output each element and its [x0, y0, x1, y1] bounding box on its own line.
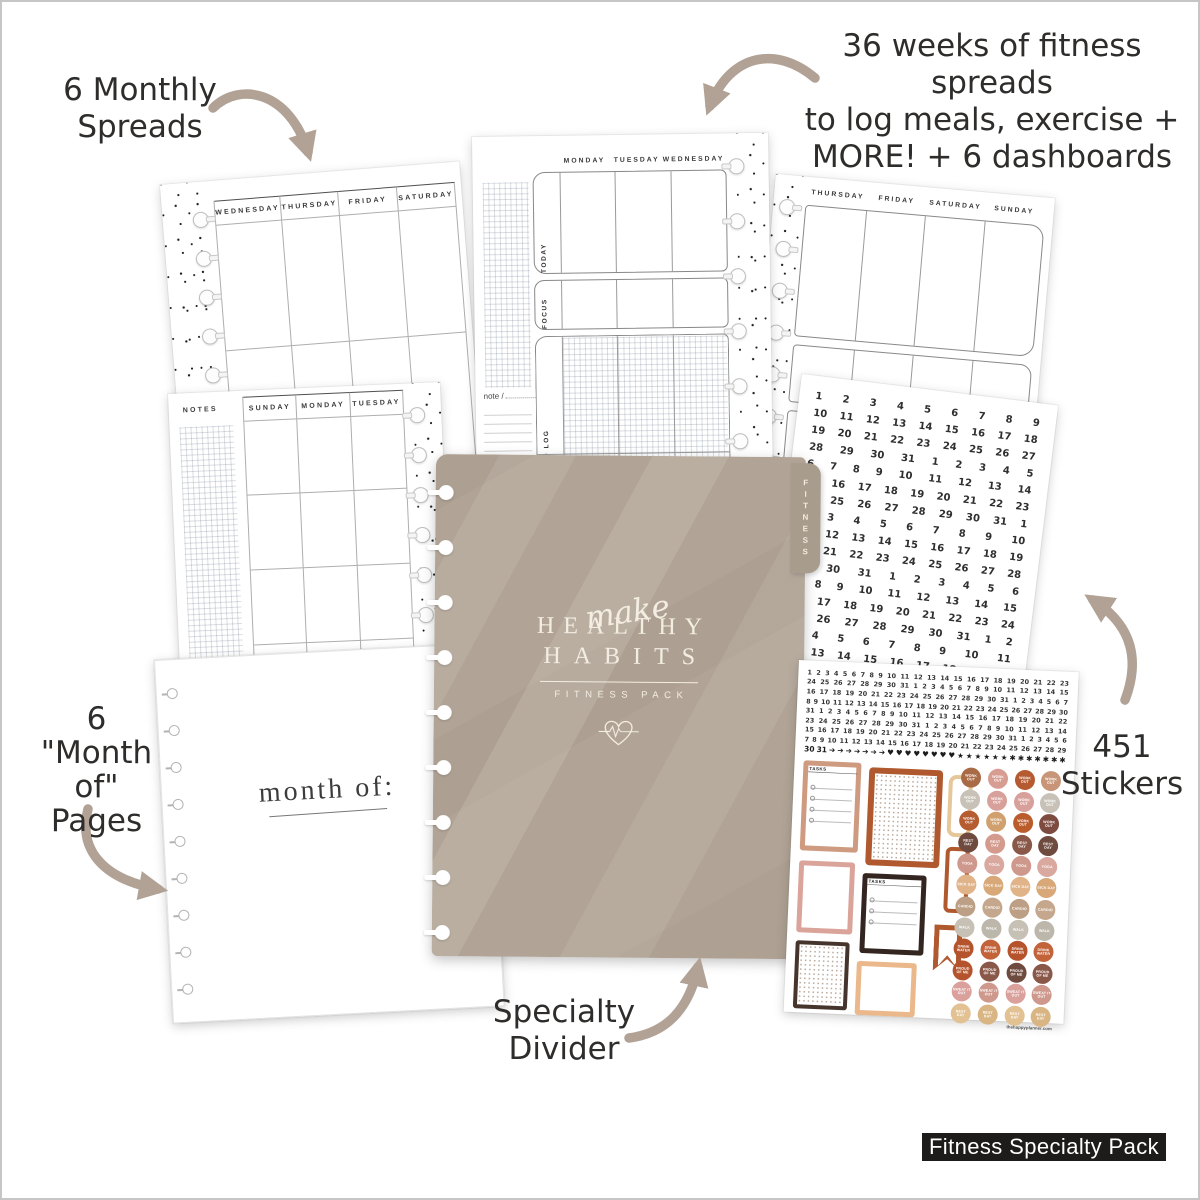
- disc-punch: [425, 815, 451, 830]
- circle-sticker: CARDIO: [1008, 898, 1029, 919]
- date-sticker: 28: [808, 441, 823, 454]
- circle-sticker-label: REST DAY: [1039, 842, 1058, 850]
- date-sticker: 20: [895, 606, 910, 619]
- date-sticker: 13: [864, 738, 873, 746]
- date-sticker: 23: [897, 691, 906, 699]
- date-sticker: 3: [1037, 736, 1042, 744]
- today-row-block: [794, 205, 1045, 357]
- date-sticker: 21: [952, 703, 961, 711]
- circle-sticker: REST DAY: [1031, 1006, 1052, 1027]
- date-sticker: 3: [869, 398, 877, 410]
- date-sticker: 14: [869, 700, 878, 708]
- symbol-sticker: ★: [983, 752, 990, 761]
- date-sticker: 16: [892, 701, 901, 709]
- date-sticker: 12: [1031, 726, 1040, 734]
- symbol-sticker: ♥: [931, 750, 938, 759]
- circle-sticker-label: WORK OUT: [1014, 798, 1033, 806]
- date-sticker: 9: [996, 724, 1001, 732]
- date-sticker: 10: [899, 711, 908, 719]
- date-sticker: 29: [938, 509, 953, 522]
- date-sticker: 16: [978, 714, 987, 722]
- date-sticker: 17: [992, 715, 1001, 723]
- date-sticker: 8: [869, 671, 874, 679]
- date-sticker: 9: [875, 467, 883, 479]
- date-sticker: 19: [869, 603, 884, 616]
- circle-sticker-label: SWEAT IT OUT: [1033, 991, 1052, 999]
- weekly-spread-left-page: note / MONDAY TUESDAY WEDNESDAY TODAY FO…: [472, 133, 773, 477]
- circle-sticker: SWEAT IT OUT: [1031, 985, 1052, 1006]
- circle-sticker-label: REST DAY: [959, 838, 978, 846]
- date-sticker: 15: [805, 726, 814, 734]
- date-sticker: 2: [955, 459, 963, 471]
- date-sticker: 4: [951, 722, 956, 730]
- symbol-sticker: ➔: [879, 748, 886, 757]
- date-sticker: 17: [904, 701, 913, 709]
- date-sticker: 6: [951, 408, 959, 420]
- circle-sticker: CARDIO: [955, 896, 976, 917]
- date-sticker: 8: [1005, 414, 1013, 426]
- date-sticker: 2: [842, 394, 850, 406]
- circle-sticker: SICK DAY: [983, 876, 1004, 897]
- date-sticker: 22: [988, 498, 1003, 511]
- date-sticker: 31: [912, 721, 921, 729]
- ruled-line: [484, 450, 532, 452]
- annotation-month-of-pages: 6 "Month of" Pages: [14, 702, 179, 838]
- date-sticker: 27: [847, 680, 856, 688]
- circle-sticker: PROUD OF ME: [979, 961, 1000, 982]
- circle-sticker: YOGA: [1037, 857, 1058, 878]
- date-sticker: 11: [1006, 686, 1015, 694]
- calendar-cell: [248, 493, 305, 570]
- circle-sticker: SICK DAY: [1009, 877, 1030, 898]
- circle-sticker-label: WALK: [982, 927, 1001, 931]
- date-sticker: 6: [863, 709, 868, 717]
- circle-sticker-label: WORK OUT: [961, 795, 980, 803]
- date-sticker: 18: [843, 727, 852, 735]
- date-sticker: 30: [887, 681, 896, 689]
- date-sticker: 9: [984, 686, 989, 694]
- date-sticker: 15: [953, 675, 962, 683]
- symbol-sticker: ★: [966, 751, 973, 760]
- disc-punch: [426, 705, 452, 720]
- date-sticker: 16: [806, 687, 815, 695]
- date-sticker: 3: [837, 708, 842, 716]
- calendar-cell: [354, 489, 411, 566]
- date-sticker: 7: [1063, 699, 1068, 707]
- date-sticker: 26: [845, 718, 854, 726]
- symbol-sticker: ➔: [870, 747, 877, 756]
- circle-sticker-label: REST DAY: [951, 1009, 970, 1017]
- date-sticker: 8: [975, 685, 980, 693]
- date-sticker: 20: [936, 491, 951, 504]
- disc-punch: [426, 650, 452, 665]
- date-sticker: 6: [1011, 586, 1019, 598]
- date-sticker: 3: [827, 512, 835, 524]
- circle-sticker-label: SWEAT IT OUT: [952, 988, 971, 996]
- date-sticker: 3: [978, 462, 986, 474]
- symbol-sticker: ♥: [896, 748, 903, 757]
- date-sticker: 5: [854, 709, 859, 717]
- date-sticker: 17: [830, 727, 839, 735]
- date-sticker: 15: [1002, 602, 1017, 615]
- date-sticker: 27: [884, 502, 899, 515]
- date-sticker: 10: [964, 649, 979, 662]
- date-sticker: 16: [970, 427, 985, 440]
- circle-sticker: YOGA: [957, 853, 978, 874]
- circle-sticker-label: CARDIO: [1036, 907, 1055, 911]
- circle-sticker: REST DAY: [977, 1004, 998, 1025]
- circle-sticker-label: SICK DAY: [1011, 885, 1030, 889]
- date-sticker: 10: [813, 408, 828, 421]
- date-sticker: 16: [967, 675, 976, 683]
- circle-sticker-label: DRINK WATER: [1034, 948, 1053, 956]
- circle-sticker: REST DAY: [985, 833, 1006, 854]
- date-sticker: 26: [1021, 745, 1030, 753]
- date-sticker: 30: [987, 695, 996, 703]
- date-sticker: 19: [811, 425, 826, 438]
- symbol-sticker: ✱: [1009, 753, 1016, 762]
- date-sticker: 15: [1059, 689, 1068, 697]
- circle-sticker: WORK OUT: [1039, 814, 1060, 835]
- date-sticker: 13: [1033, 688, 1042, 696]
- circle-sticker-label: DRINK WATER: [954, 945, 973, 953]
- date-sticker: 21: [921, 609, 936, 622]
- circle-sticker: REST DAY: [950, 1003, 971, 1024]
- date-sticker: 27: [1021, 450, 1036, 463]
- date-sticker: 16: [930, 542, 945, 555]
- date-sticker: 6: [958, 684, 963, 692]
- disc-punch: [427, 595, 453, 610]
- calendar-cell: [282, 215, 350, 347]
- circle-sticker: WORK OUT: [959, 810, 980, 831]
- date-sticker: 3: [931, 683, 936, 691]
- circle-sticker-label: YOGA: [1011, 864, 1030, 868]
- date-sticker: 12: [925, 712, 934, 720]
- circle-sticker-label: REST DAY: [1012, 840, 1031, 848]
- disc-punch: [424, 925, 450, 940]
- divider-title-block: make HEALTHY HABITS FITNESS PACK: [433, 594, 804, 755]
- date-sticker: 25: [829, 495, 844, 508]
- date-sticker: 20: [1020, 677, 1029, 685]
- circle-sticker: WORK OUT: [985, 811, 1006, 832]
- date-sticker: 19: [1018, 716, 1027, 724]
- symbol-sticker: ➔: [854, 747, 861, 756]
- circle-sticker: CARDIO: [1035, 899, 1056, 920]
- circle-sticker-label: WALK: [1035, 929, 1054, 933]
- date-sticker: 23: [985, 743, 994, 751]
- date-sticker: 8: [806, 697, 811, 705]
- date-sticker: 10: [858, 585, 873, 598]
- date-sticker: 24: [987, 705, 996, 713]
- date-sticker: 9: [938, 646, 946, 658]
- date-sticker: 20: [837, 428, 852, 441]
- date-sticker: 28: [860, 680, 869, 688]
- day-header: SUNDAY: [985, 204, 1044, 216]
- annotation-stickers: 451 Stickers: [1047, 729, 1197, 803]
- circle-sticker: PROUD OF ME: [1006, 962, 1027, 983]
- circle-sticker: WALK: [954, 917, 975, 938]
- date-sticker: 19: [1009, 552, 1024, 565]
- date-sticker: 5: [960, 723, 965, 731]
- sticker-area: TASKS TASKS WORK OUTWORK OUTWORK OUTWORK: [792, 759, 1065, 1028]
- symbol-sticker: ✱: [1026, 754, 1033, 763]
- date-sticker: 24: [942, 441, 957, 454]
- circle-sticker-grid: WORK OUTWORK OUTWORK OUTWORK OUTWORK OUT…: [950, 768, 1065, 1029]
- website-label: thehappyplanner.com: [1007, 1025, 1053, 1032]
- date-sticker: 21: [1033, 678, 1042, 686]
- divider-subtitle: FITNESS PACK: [439, 688, 804, 702]
- date-sticker: 16: [900, 739, 909, 747]
- disc-punch: [425, 760, 451, 775]
- symbol-sticker: ♥: [904, 749, 911, 758]
- date-sticker: 2: [922, 683, 927, 691]
- circle-sticker: REST DAY: [1011, 834, 1032, 855]
- circle-sticker-label: SICK DAY: [984, 884, 1003, 888]
- calendar-cell: [304, 566, 361, 643]
- circle-sticker-label: SWEAT IT OUT: [1006, 990, 1025, 998]
- date-sticker: 22: [1047, 679, 1056, 687]
- date-sticker: 15: [903, 539, 918, 552]
- date-sticker: 23: [974, 616, 989, 629]
- date-sticker: 13: [892, 417, 907, 430]
- circle-sticker: SWEAT IT OUT: [1005, 984, 1026, 1005]
- circle-sticker-label: DRINK WATER: [981, 946, 1000, 954]
- day-header: SATURDAY: [926, 199, 985, 211]
- date-sticker: 30: [1059, 708, 1068, 716]
- date-sticker: 8: [958, 528, 966, 540]
- today-row-block: TODAY: [532, 169, 727, 274]
- annotation-specialty-divider: Specialty Divider: [464, 994, 664, 1068]
- date-sticker: 24: [807, 678, 816, 686]
- circle-sticker: REST DAY: [1004, 1005, 1025, 1026]
- date-sticker: 31: [1008, 735, 1017, 743]
- date-sticker: 31: [816, 745, 827, 754]
- calendar-cell: [298, 416, 355, 493]
- date-sticker: 11: [900, 672, 909, 680]
- section-label: FOCUS: [541, 281, 549, 329]
- date-sticker: 21: [871, 690, 880, 698]
- circle-sticker: WORK OUT: [960, 789, 981, 810]
- date-sticker: 7: [932, 525, 940, 537]
- date-sticker: 10: [827, 736, 836, 744]
- date-sticker: 4: [896, 401, 904, 413]
- date-sticker: 12: [865, 414, 880, 427]
- circle-sticker: YOGA: [1010, 855, 1031, 876]
- date-sticker: 9: [984, 532, 992, 544]
- circle-sticker-label: REST DAY: [986, 839, 1005, 847]
- circle-sticker-label: WALK: [1009, 928, 1028, 932]
- circle-sticker-label: REST DAY: [1032, 1013, 1051, 1021]
- circle-sticker: WALK: [1034, 921, 1055, 942]
- dotted-box-sticker: [865, 768, 943, 869]
- date-sticker: 16: [817, 726, 826, 734]
- date-sticker: 19: [936, 741, 945, 749]
- date-sticker: 21: [881, 729, 890, 737]
- date-sticker: 2: [1029, 735, 1034, 743]
- date-sticker: 1: [819, 707, 824, 715]
- date-sticker: 10: [898, 470, 913, 483]
- date-sticker: 5: [843, 670, 848, 678]
- date-sticker: 25: [999, 705, 1008, 713]
- circle-sticker-label: SICK DAY: [957, 883, 976, 887]
- date-sticker: 3: [938, 577, 946, 589]
- date-sticker: 7: [978, 724, 983, 732]
- date-sticker: 2: [1005, 637, 1013, 649]
- date-sticker: 31: [1000, 696, 1009, 704]
- date-sticker: 27: [980, 565, 995, 578]
- date-sticker: 21: [863, 431, 878, 444]
- date-sticker: 31: [900, 682, 909, 690]
- date-sticker: 30: [870, 449, 885, 462]
- date-sticker: 14: [876, 738, 885, 746]
- plain-box-sticker: [796, 861, 855, 935]
- date-sticker: 19: [1007, 677, 1016, 685]
- symbol-sticker: ♥: [913, 749, 920, 758]
- symbol-sticker: ★: [1001, 753, 1008, 762]
- date-sticker: 14: [877, 536, 892, 549]
- circle-sticker: WALK: [1008, 919, 1029, 940]
- date-sticker: 1: [807, 668, 812, 676]
- date-sticker: 29: [839, 445, 854, 458]
- day-header: MONDAY: [558, 157, 610, 165]
- date-sticker: 4: [845, 708, 850, 716]
- date-sticker: 6: [862, 636, 870, 648]
- date-sticker: 25: [923, 692, 932, 700]
- date-sticker: 18: [1023, 434, 1038, 447]
- tasks-box-sticker: TASKS: [800, 761, 862, 853]
- calendar-cell: [216, 220, 291, 352]
- circle-sticker: WORK OUT: [961, 768, 982, 789]
- date-sticker: 13: [851, 532, 866, 545]
- disc-punch-hook: [173, 910, 190, 923]
- plain-box-sticker: [855, 961, 917, 1018]
- fitness-tab-label: FITNESS: [801, 478, 811, 559]
- date-sticker: 11: [833, 698, 842, 706]
- date-sticker: 26: [945, 732, 954, 740]
- calendar-cell: [251, 568, 308, 645]
- date-sticker: 17: [980, 676, 989, 684]
- date-sticker: 7: [978, 411, 986, 423]
- date-sticker: 26: [954, 562, 969, 575]
- date-sticker: 24: [919, 731, 928, 739]
- date-sticker: 4: [1038, 697, 1043, 705]
- date-sticker: 31: [956, 631, 971, 644]
- product-showcase: WEDNESDAYTHURSDAYFRIDAYSATURDAY THURSDAY…: [0, 0, 1200, 1200]
- ruled-line: [484, 414, 532, 416]
- date-sticker: 28: [961, 694, 970, 702]
- date-sticker: 30: [995, 734, 1004, 742]
- day-header: SUNDAY: [243, 394, 297, 420]
- calendar-cell: [301, 491, 358, 568]
- symbol-sticker: ♥: [939, 750, 946, 759]
- date-sticker: 31: [857, 567, 872, 580]
- date-sticker: 3: [943, 722, 948, 730]
- circle-sticker-label: CARDIO: [956, 904, 975, 908]
- date-sticker: 30: [965, 512, 980, 525]
- date-sticker: 27: [1033, 745, 1042, 753]
- date-sticker: 24: [901, 556, 916, 569]
- date-sticker: 24: [819, 717, 828, 725]
- ruled-line: [484, 432, 532, 434]
- date-sticker: 17: [997, 430, 1012, 443]
- notes-label: NOTES: [183, 406, 218, 415]
- date-sticker: 8: [913, 643, 921, 655]
- date-sticker: 23: [906, 730, 915, 738]
- date-sticker: 10: [1011, 535, 1026, 548]
- date-sticker: 28: [970, 733, 979, 741]
- date-sticker: 8: [881, 710, 886, 718]
- date-sticker: 23: [1015, 501, 1030, 514]
- symbol-sticker: ♥: [887, 748, 894, 757]
- circle-sticker-label: YOGA: [985, 862, 1004, 866]
- date-sticker: 31: [806, 707, 815, 715]
- date-sticker: 2: [913, 574, 921, 586]
- date-sticker: 18: [883, 485, 898, 498]
- date-sticker: 25: [968, 444, 983, 457]
- date-sticker: 20: [948, 742, 957, 750]
- circle-sticker-label: WORK OUT: [960, 817, 979, 825]
- date-sticker: 4: [962, 580, 970, 592]
- date-sticker: 15: [888, 739, 897, 747]
- circle-sticker: DRINK WATER: [1007, 941, 1028, 962]
- date-sticker: 5: [837, 633, 845, 645]
- date-sticker: 19: [928, 702, 937, 710]
- date-sticker: 17: [912, 740, 921, 748]
- date-sticker: 28: [1035, 707, 1044, 715]
- date-sticker: 5: [923, 404, 931, 416]
- date-sticker: 11: [996, 653, 1011, 666]
- circle-sticker-label: YOGA: [1038, 865, 1057, 869]
- tasks-box-sticker-dark: TASKS: [859, 873, 926, 956]
- date-sticker: 14: [1046, 688, 1055, 696]
- date-sticker: 22: [849, 549, 864, 562]
- divider-rule: [540, 681, 698, 683]
- date-sticker: 26: [857, 499, 872, 512]
- date-sticker: 4: [834, 669, 839, 677]
- circle-sticker-label: DRINK WATER: [1008, 947, 1027, 955]
- date-sticker: 11: [887, 588, 902, 601]
- date-sticker: 14: [918, 421, 933, 434]
- circle-sticker-label: PROUD OF ME: [1033, 970, 1052, 978]
- date-sticker: 22: [972, 743, 981, 751]
- date-sticker: 21: [960, 742, 969, 750]
- date-sticker: 5: [949, 684, 954, 692]
- date-sticker: 11: [928, 473, 943, 486]
- circle-sticker-label: PROUD OF ME: [980, 967, 999, 975]
- date-sticker: 20: [1032, 716, 1041, 724]
- date-sticker: 23: [976, 704, 985, 712]
- date-sticker: 1: [888, 571, 896, 583]
- circle-sticker-label: WORK OUT: [988, 775, 1007, 783]
- date-sticker: 9: [813, 697, 818, 705]
- date-sticker: 6: [852, 670, 857, 678]
- note-label: note /: [484, 391, 540, 401]
- circle-sticker: SICK DAY: [956, 874, 977, 895]
- symbol-sticker: ★: [974, 752, 981, 761]
- heart-ekg-icon: [595, 716, 641, 748]
- date-sticker: 27: [957, 732, 966, 740]
- disc-punch-hook: [175, 946, 192, 959]
- date-sticker: 5: [1047, 698, 1052, 706]
- circle-sticker-label: CARDIO: [983, 905, 1002, 909]
- date-sticker: 11: [839, 411, 854, 424]
- fitness-divider: FITNESS make HEALTHY HABITS FITNESS PACK: [432, 454, 806, 959]
- date-sticker: 2: [816, 669, 821, 677]
- date-sticker: 27: [948, 694, 957, 702]
- dotted-edge-strip: [736, 133, 773, 473]
- date-sticker: 25: [820, 678, 829, 686]
- date-sticker: 18: [993, 676, 1002, 684]
